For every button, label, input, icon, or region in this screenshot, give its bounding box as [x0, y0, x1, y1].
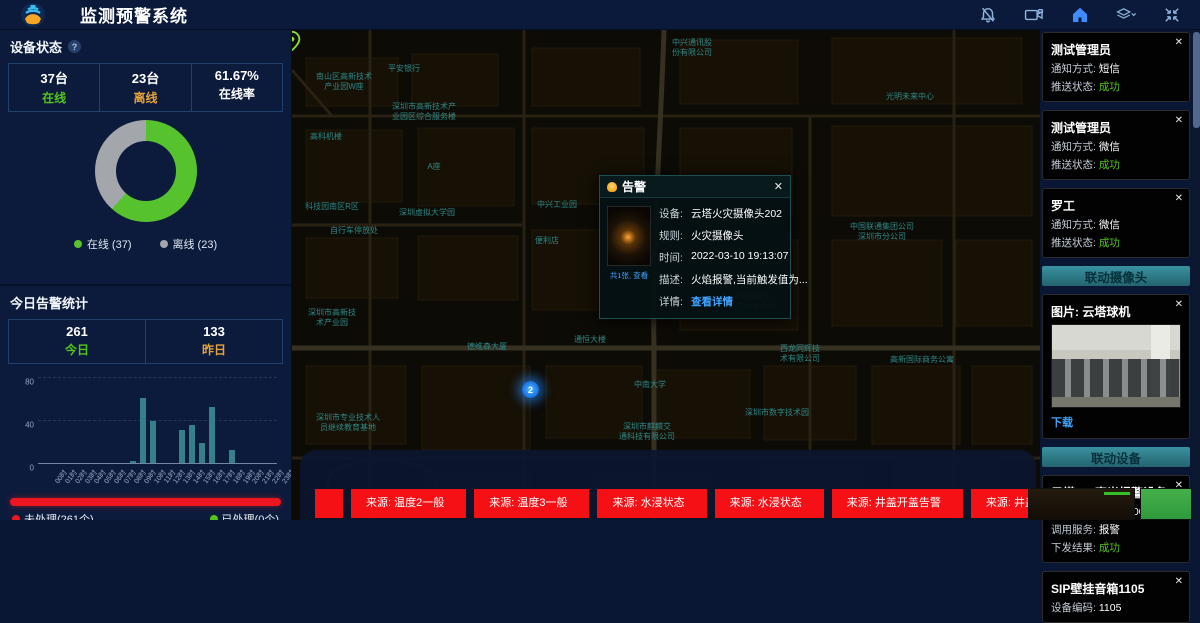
card-row: 设备编码: 1105	[1051, 600, 1181, 615]
bottom-camera-thumbnail[interactable]	[1028, 488, 1135, 520]
alert-popup-rows: 设备:云塔火灾摄像头202规则:火灾摄像头时间:2022-03-10 19:13…	[659, 206, 808, 309]
bell-off-icon[interactable]	[978, 6, 998, 24]
card-row: 通知方式: 短信	[1051, 61, 1181, 76]
unhandled-progress-bar	[10, 498, 281, 506]
gridline	[38, 377, 277, 378]
camera-card-title: 图片: 云塔球机	[1051, 303, 1181, 320]
alert-detail-value: 云塔火灾摄像头202	[691, 206, 782, 221]
notification-card: ✕罗工通知方式: 微信推送状态: 成功	[1042, 188, 1190, 258]
today-alerts-title: 今日告警统计	[10, 293, 88, 312]
device-status-donut-chart	[95, 120, 197, 222]
alert-detail-value: 2022-03-10 19:13:07	[691, 250, 789, 265]
bar	[130, 461, 136, 463]
handled-label: 已处理(0个)	[222, 511, 279, 520]
alert-detail-value: 火灾摄像头	[691, 228, 744, 243]
alarm-bulb-icon	[607, 182, 617, 192]
bar	[150, 421, 156, 464]
stat-value: 261	[9, 324, 145, 339]
app-header: 监测预警系统	[0, 0, 1200, 30]
scrollbar-thumb[interactable]	[1193, 32, 1200, 128]
donut-hole	[116, 141, 176, 201]
card-row: 通知方式: 微信	[1051, 217, 1181, 232]
y-tick-label: 0	[10, 464, 34, 473]
notification-card: ✕测试管理员通知方式: 短信推送状态: 成功	[1042, 32, 1190, 102]
view-details-link[interactable]: 查看详情	[691, 294, 733, 309]
close-icon[interactable]: ✕	[1175, 37, 1183, 48]
alert-detail-value: 火焰报警,当前触发值为...	[691, 272, 808, 287]
scrollbar[interactable]	[1193, 30, 1200, 520]
alert-popup-title: 告警	[622, 178, 646, 195]
card-row: 调用服务: 报警	[1051, 522, 1181, 537]
notification-cards: ✕测试管理员通知方式: 短信推送状态: 成功✕测试管理员通知方式: 微信推送状态…	[1042, 32, 1190, 258]
handled-dot-icon	[210, 515, 218, 520]
alert-snapshot-caption[interactable]: 共1张, 查看	[607, 270, 651, 281]
notification-card: ✕测试管理员通知方式: 微信推送状态: 成功	[1042, 110, 1190, 180]
home-icon[interactable]	[1070, 6, 1090, 24]
bar	[199, 443, 205, 463]
alert-detail-label: 描述:	[659, 272, 691, 287]
stat-value: 133	[146, 324, 282, 339]
alert-detail-row: 规则:火灾摄像头	[659, 228, 808, 243]
card-title: 罗工	[1051, 197, 1181, 214]
alert-detail-row: 时间:2022-03-10 19:13:07	[659, 250, 808, 265]
alert-banner[interactable]: 来源: 温度3一般	[474, 489, 589, 518]
alert-snapshot-image[interactable]	[607, 206, 651, 266]
close-icon[interactable]: ✕	[1175, 115, 1183, 126]
camera-snapshot-image[interactable]	[1051, 324, 1181, 408]
fullscreen-exit-icon[interactable]	[1162, 6, 1182, 24]
stat-label: 在线	[9, 89, 99, 106]
y-tick-label: 80	[10, 378, 34, 387]
card-row: 推送状态: 成功	[1051, 79, 1181, 94]
linked-device-card: ✕SIP壁挂音箱1105设备编码: 1105	[1042, 571, 1190, 623]
legend-item: 离线 (23)	[160, 236, 218, 252]
legend-label: 在线 (37)	[87, 236, 132, 252]
alert-detail-row: 详情:查看详情	[659, 294, 808, 309]
bottom-alert-banners: 来源: 温度2一般来源: 温度3一般来源: 水浸状态来源: 水浸状态来源: 井盖…	[315, 489, 1102, 518]
close-icon[interactable]: ✕	[1175, 299, 1183, 310]
today-alert-stats: 261今日133昨日	[8, 319, 283, 364]
bar	[229, 450, 235, 463]
stat-label: 在线率	[192, 85, 282, 102]
card-row: 推送状态: 成功	[1051, 157, 1181, 172]
alert-banner[interactable]: 来源: 温度2一般	[351, 489, 466, 518]
today-alert-bar-chart: 0408000时01时02时03时04时05时06时07时08时09时10时11…	[10, 370, 281, 492]
unhandled-dot-icon	[12, 515, 20, 520]
stat-cell: 23台离线	[99, 64, 190, 111]
today-alerts-section: 今日告警统计 261今日133昨日 0408000时01时02时03时04时05…	[0, 284, 291, 520]
app-logo	[20, 2, 46, 28]
video-camera-icon[interactable]	[1024, 6, 1044, 24]
stat-label: 离线	[100, 89, 190, 106]
legend-dot-icon	[74, 240, 82, 248]
alert-detail-label: 详情:	[659, 294, 691, 309]
alert-banner[interactable]: 来源: 水浸状态	[597, 489, 706, 518]
bar	[179, 430, 185, 463]
alert-detail-label: 时间:	[659, 250, 691, 265]
card-title: 测试管理员	[1051, 41, 1181, 58]
stat-cell: 37台在线	[9, 64, 99, 111]
stat-label: 昨日	[146, 341, 282, 358]
legend-label: 离线 (23)	[173, 236, 218, 252]
linked-device-header[interactable]: 联动设备	[1042, 447, 1190, 467]
donut-legend: 在线 (37)离线 (23)	[0, 236, 291, 284]
page-title: 监测预警系统	[80, 2, 188, 27]
right-panel: ✕测试管理员通知方式: 短信推送状态: 成功✕测试管理员通知方式: 微信推送状态…	[1042, 32, 1190, 623]
bar	[189, 425, 195, 463]
alert-popup-header: 告警 ✕	[600, 176, 790, 198]
close-icon[interactable]: ✕	[1175, 193, 1183, 204]
alert-detail-row: 设备:云塔火灾摄像头202	[659, 206, 808, 221]
alert-detail-label: 规则:	[659, 228, 691, 243]
linked-camera-card: ✕ 图片: 云塔球机 下载	[1042, 294, 1190, 439]
bar	[209, 407, 215, 463]
stat-label: 今日	[9, 341, 145, 358]
alert-detail-row: 描述:火焰报警,当前触发值为...	[659, 272, 808, 287]
legend-dot-icon	[160, 240, 168, 248]
bottom-green-thumbnail[interactable]	[1140, 488, 1192, 520]
left-panel: 设备状态 ? 37台在线23台离线61.67%在线率 在线 (37)离线 (23…	[0, 30, 292, 520]
card-title: 测试管理员	[1051, 119, 1181, 136]
close-icon[interactable]: ✕	[1175, 576, 1183, 587]
card-row: 下发结果: 成功	[1051, 540, 1181, 555]
bar	[140, 398, 146, 463]
stat-cell: 133昨日	[145, 320, 282, 363]
layers-icon[interactable]	[1116, 6, 1136, 24]
y-tick-label: 40	[10, 421, 34, 430]
download-link[interactable]: 下载	[1051, 417, 1073, 429]
card-title: SIP壁挂音箱1105	[1051, 580, 1181, 597]
help-icon[interactable]: ?	[68, 40, 81, 53]
device-status-section: 设备状态 ? 37台在线23台离线61.67%在线率 在线 (37)离线 (23…	[0, 30, 291, 284]
stat-cell: 261今日	[9, 320, 145, 363]
alert-banner[interactable]: 来源: 水浸状态	[715, 489, 824, 518]
unhandled-label: 未处理(261个)	[24, 511, 94, 520]
card-row: 通知方式: 微信	[1051, 139, 1181, 154]
stat-value: 23台	[100, 68, 190, 87]
popup-close-icon[interactable]: ✕	[774, 180, 783, 193]
device-status-stats: 37台在线23台离线61.67%在线率	[8, 63, 283, 112]
card-row: 推送状态: 成功	[1051, 235, 1181, 250]
linked-camera-header[interactable]: 联动摄像头	[1042, 266, 1190, 286]
stat-value: 61.67%	[192, 68, 282, 83]
alert-popup: 告警 ✕ 共1张, 查看 设备:云塔火灾摄像头202规则:火灾摄像头时间:202…	[599, 175, 791, 319]
alert-detail-label: 设备:	[659, 206, 691, 221]
stat-value: 37台	[9, 68, 99, 87]
progress-legend: 未处理(261个) 已处理(0个)	[12, 511, 279, 520]
device-status-title: 设备状态	[10, 37, 62, 56]
stat-cell: 61.67%在线率	[191, 64, 282, 111]
alert-banner-partial[interactable]	[315, 489, 343, 518]
gridline	[38, 420, 277, 421]
alert-banner[interactable]: 来源: 井盖开盖告警	[832, 489, 963, 518]
map-cluster-marker[interactable]: 2	[522, 381, 539, 398]
legend-item: 在线 (37)	[74, 236, 132, 252]
